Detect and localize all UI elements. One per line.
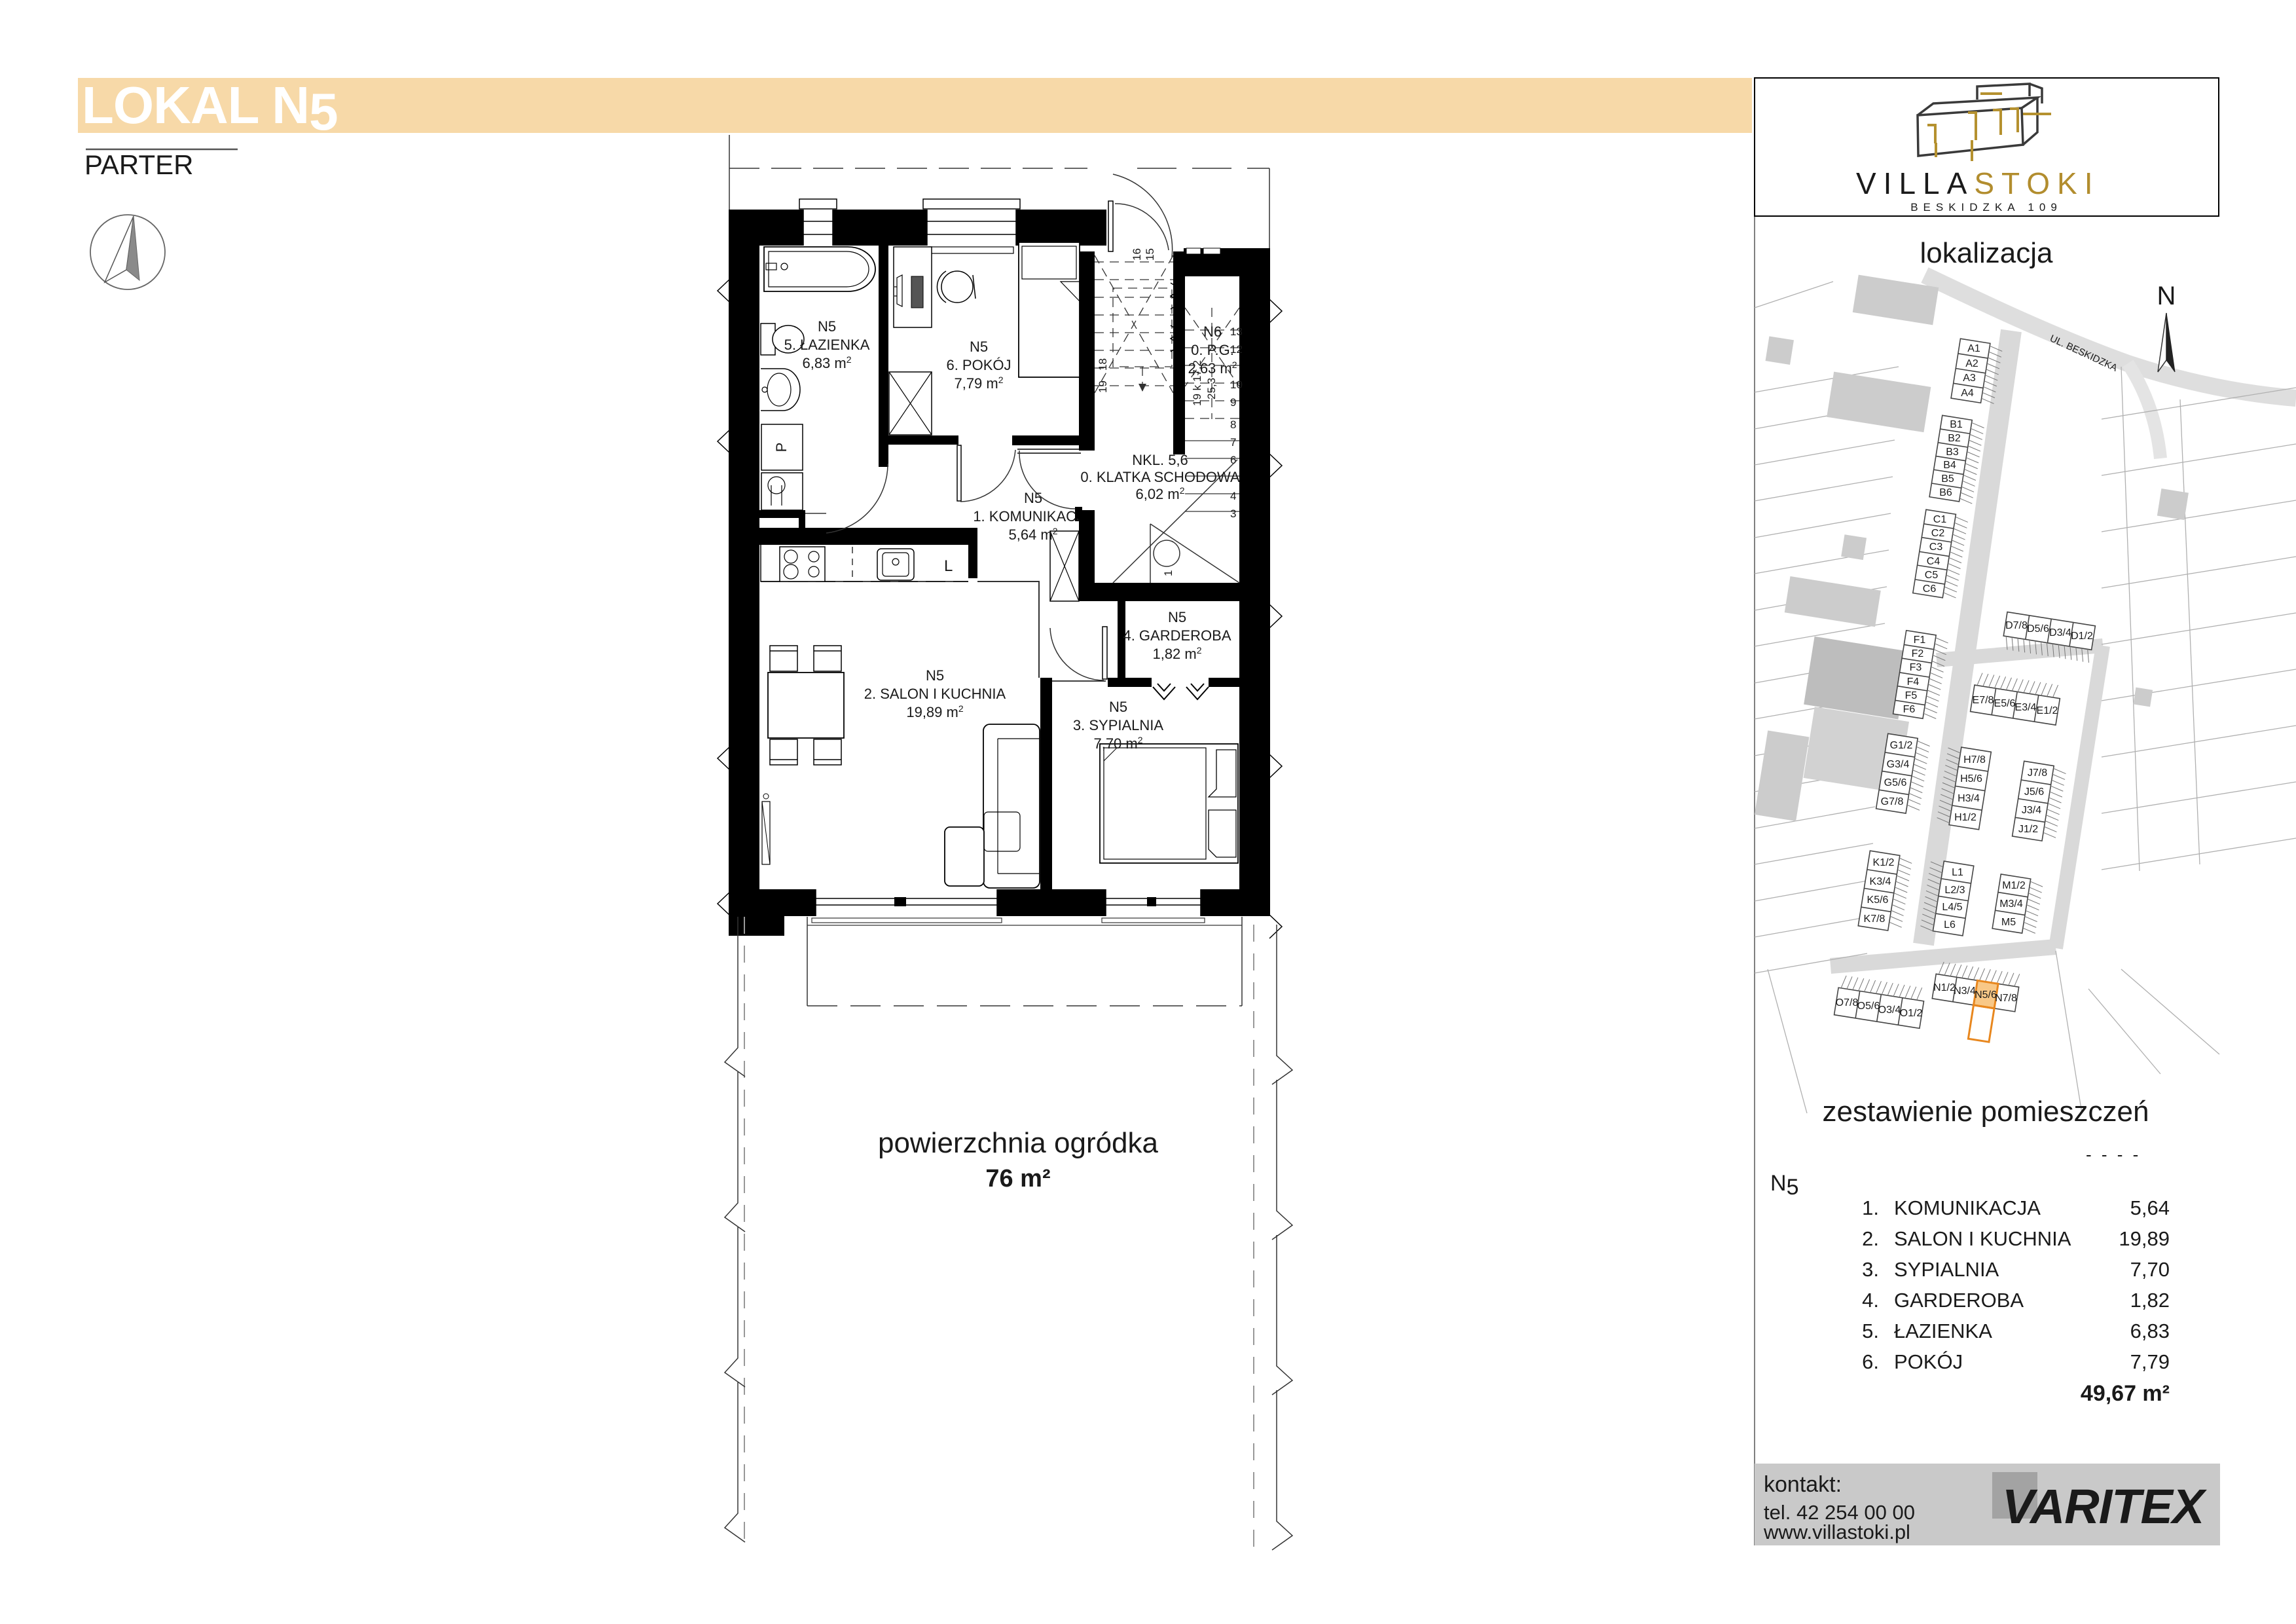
svg-text:C5: C5 [1925, 570, 1939, 581]
svg-text:0. KLATKA SCHODOWA: 0. KLATKA SCHODOWA [1080, 469, 1240, 485]
svg-text:N6: N6 [1203, 323, 1222, 340]
svg-text:A3: A3 [1963, 373, 1976, 384]
svg-text:7,79: 7,79 [2130, 1350, 2170, 1373]
svg-text:O7/8: O7/8 [1836, 997, 1859, 1008]
svg-text:D1/2: D1/2 [2071, 631, 2093, 642]
svg-text:N5: N5 [1168, 609, 1186, 625]
svg-text:O1/2: O1/2 [1900, 1008, 1923, 1019]
svg-text:F1: F1 [1914, 635, 1926, 646]
svg-text:K5/6: K5/6 [1867, 895, 1889, 906]
svg-text:19,89: 19,89 [2119, 1227, 2170, 1250]
svg-text:6.: 6. [1862, 1350, 1879, 1373]
svg-text:3. SYPIALNIA: 3. SYPIALNIA [1073, 717, 1164, 733]
svg-text:4.: 4. [1862, 1289, 1879, 1312]
svg-text:1,82: 1,82 [2130, 1289, 2170, 1312]
svg-text:C2: C2 [1931, 528, 1945, 539]
svg-text:18: 18 [1097, 358, 1109, 371]
svg-text:2. SALON I KUCHNIA: 2. SALON I KUCHNIA [864, 686, 1006, 702]
svg-text:8: 8 [1230, 418, 1236, 431]
svg-text:1. KOMUNIKACJA: 1. KOMUNIKACJA [973, 508, 1093, 525]
svg-text:10: 10 [1230, 378, 1243, 391]
svg-text:7,70: 7,70 [2130, 1258, 2170, 1281]
svg-text:SALON I KUCHNIA: SALON I KUCHNIA [1894, 1227, 2071, 1250]
svg-text:powierzchnia ogródka: powierzchnia ogródka [878, 1127, 1159, 1159]
svg-text:G5/6: G5/6 [1884, 777, 1907, 788]
svg-text:F6: F6 [1903, 704, 1916, 715]
svg-text:G3/4: G3/4 [1887, 759, 1910, 770]
svg-text:N: N [2157, 282, 2176, 310]
svg-text:H1/2: H1/2 [1954, 812, 1977, 823]
svg-text:N5: N5 [1109, 699, 1127, 715]
svg-text:H3/4: H3/4 [1958, 793, 1980, 804]
svg-text:O5/6: O5/6 [1857, 1001, 1880, 1012]
svg-text:J5/6: J5/6 [2024, 786, 2044, 798]
svg-text:J7/8: J7/8 [2028, 767, 2047, 779]
svg-text:F3: F3 [1910, 662, 1922, 673]
svg-text:5. ŁAZIENKA: 5. ŁAZIENKA [784, 337, 870, 353]
svg-text:2.: 2. [1862, 1227, 1879, 1250]
svg-text:1,82 m2: 1,82 m2 [1152, 645, 1201, 662]
svg-text:NKL. 5,6: NKL. 5,6 [1132, 452, 1188, 468]
svg-text:L2/3: L2/3 [1944, 885, 1965, 896]
svg-text:PARTER: PARTER [84, 149, 193, 180]
svg-text:C3: C3 [1929, 542, 1943, 553]
svg-text:5,64 m2: 5,64 m2 [1008, 526, 1057, 543]
svg-text:19,89 m2: 19,89 m2 [906, 703, 964, 720]
svg-text:N3/4: N3/4 [1954, 986, 1976, 997]
svg-text:M5: M5 [2001, 917, 2016, 928]
svg-text:D5/6: D5/6 [2027, 623, 2049, 635]
svg-text:N5: N5 [970, 339, 988, 355]
svg-text:D3/4: D3/4 [2049, 627, 2071, 638]
svg-text:lokalizacja: lokalizacja [1920, 237, 2054, 269]
svg-text:D7/8: D7/8 [2005, 620, 2028, 631]
svg-text:KOMUNIKACJA: KOMUNIKACJA [1894, 1196, 2041, 1219]
svg-text:B4: B4 [1943, 460, 1956, 471]
svg-text:POKÓJ: POKÓJ [1894, 1350, 1963, 1373]
svg-text:K7/8: K7/8 [1864, 913, 1886, 925]
svg-text:7: 7 [1230, 436, 1236, 449]
svg-text:J3/4: J3/4 [2022, 805, 2041, 816]
svg-text:- - - -: - - - - [2086, 1145, 2141, 1164]
svg-text:A1: A1 [1967, 343, 1980, 354]
svg-text:L1: L1 [1952, 867, 1963, 878]
svg-text:VARITEX: VARITEX [2002, 1479, 2208, 1534]
svg-text:19: 19 [1097, 380, 1109, 393]
svg-text:A4: A4 [1961, 388, 1974, 399]
svg-text:B3: B3 [1946, 447, 1959, 458]
svg-text:2,63 m2: 2,63 m2 [1188, 360, 1237, 377]
svg-text:J1/2: J1/2 [2018, 824, 2038, 835]
svg-text:9: 9 [1230, 396, 1236, 409]
svg-text:76 m²: 76 m² [985, 1165, 1050, 1192]
svg-text:L6: L6 [1944, 919, 1956, 931]
svg-text:N5: N5 [1024, 490, 1042, 506]
svg-text:5,64: 5,64 [2130, 1196, 2170, 1219]
svg-text:C6: C6 [1923, 583, 1937, 595]
svg-text:6,83 m2: 6,83 m2 [802, 354, 851, 371]
svg-text:25,3: 25,3 [1205, 378, 1218, 399]
svg-text:G7/8: G7/8 [1881, 796, 1904, 807]
svg-text:F4: F4 [1907, 676, 1920, 688]
svg-text:H5/6: H5/6 [1960, 773, 1982, 784]
svg-text:7,79 m2: 7,79 m2 [954, 375, 1003, 392]
svg-text:B1: B1 [1950, 419, 1963, 430]
svg-text:4. GARDEROBA: 4. GARDEROBA [1123, 627, 1231, 644]
svg-text:0. P.G.: 0. P.G. [1191, 342, 1234, 358]
svg-text:A2: A2 [1965, 358, 1978, 369]
svg-text:6. POKÓJ: 6. POKÓJ [946, 357, 1011, 373]
svg-text:1.: 1. [1862, 1196, 1879, 1219]
svg-text:H7/8: H7/8 [1963, 754, 1986, 766]
svg-text:B6: B6 [1939, 487, 1952, 498]
svg-text:F5: F5 [1905, 690, 1918, 701]
svg-text:M3/4: M3/4 [1999, 898, 2023, 910]
svg-text:LOKAL N5: LOKAL N5 [82, 76, 338, 141]
svg-text:E1/2: E1/2 [2037, 705, 2058, 716]
svg-text:N1/2: N1/2 [1933, 982, 1956, 993]
svg-text:K1/2: K1/2 [1873, 857, 1895, 868]
svg-text:BESKIDZKA 109: BESKIDZKA 109 [1910, 201, 2062, 213]
svg-text:zestawienie pomieszczeń: zestawienie pomieszczeń [1823, 1096, 2149, 1128]
svg-text:O3/4: O3/4 [1878, 1005, 1901, 1016]
svg-text:C1: C1 [1933, 514, 1947, 525]
svg-text:ŁAZIENKA: ŁAZIENKA [1894, 1319, 1992, 1342]
svg-text:N7/8: N7/8 [1995, 993, 2017, 1004]
svg-text:VILLASTOKI: VILLASTOKI [1856, 166, 2100, 200]
svg-text:7,70 m2: 7,70 m2 [1093, 735, 1142, 752]
svg-text:SYPIALNIA: SYPIALNIA [1894, 1258, 1999, 1281]
svg-text:6,02 m2: 6,02 m2 [1135, 485, 1184, 502]
svg-text:M1/2: M1/2 [2002, 880, 2026, 891]
svg-text:B5: B5 [1941, 473, 1954, 485]
svg-text:49,67 m²: 49,67 m² [2081, 1381, 2170, 1406]
svg-text:L4/5: L4/5 [1942, 902, 1962, 913]
svg-text:K3/4: K3/4 [1870, 876, 1891, 887]
svg-text:3.: 3. [1862, 1258, 1879, 1281]
svg-text:N5: N5 [818, 318, 836, 335]
svg-text:G1/2: G1/2 [1890, 740, 1913, 751]
svg-text:F2: F2 [1912, 648, 1924, 659]
svg-text:E5/6: E5/6 [1994, 698, 2016, 709]
svg-text:1: 1 [1162, 570, 1175, 576]
svg-text:L: L [944, 557, 953, 575]
svg-text:N5/6: N5/6 [1975, 989, 1997, 1001]
svg-text:13: 13 [1230, 325, 1243, 338]
svg-text:4: 4 [1230, 490, 1236, 502]
svg-text:N5: N5 [1770, 1171, 1798, 1200]
svg-text:C4: C4 [1927, 556, 1941, 567]
svg-text:16: 16 [1131, 248, 1143, 261]
svg-text:E7/8: E7/8 [1973, 695, 1994, 706]
svg-text:15: 15 [1144, 248, 1156, 261]
svg-text:E3/4: E3/4 [2015, 702, 2037, 713]
svg-text:P: P [773, 443, 790, 452]
svg-text:B2: B2 [1948, 433, 1961, 444]
svg-text:N5: N5 [926, 667, 944, 684]
svg-text:5.: 5. [1862, 1319, 1879, 1342]
svg-text:GARDEROBA: GARDEROBA [1894, 1289, 2024, 1312]
svg-text:kontakt:: kontakt: [1764, 1472, 1842, 1497]
svg-text:www.villastoki.pl: www.villastoki.pl [1763, 1521, 1910, 1543]
svg-text:6,83: 6,83 [2130, 1319, 2170, 1342]
svg-text:3: 3 [1230, 507, 1236, 520]
